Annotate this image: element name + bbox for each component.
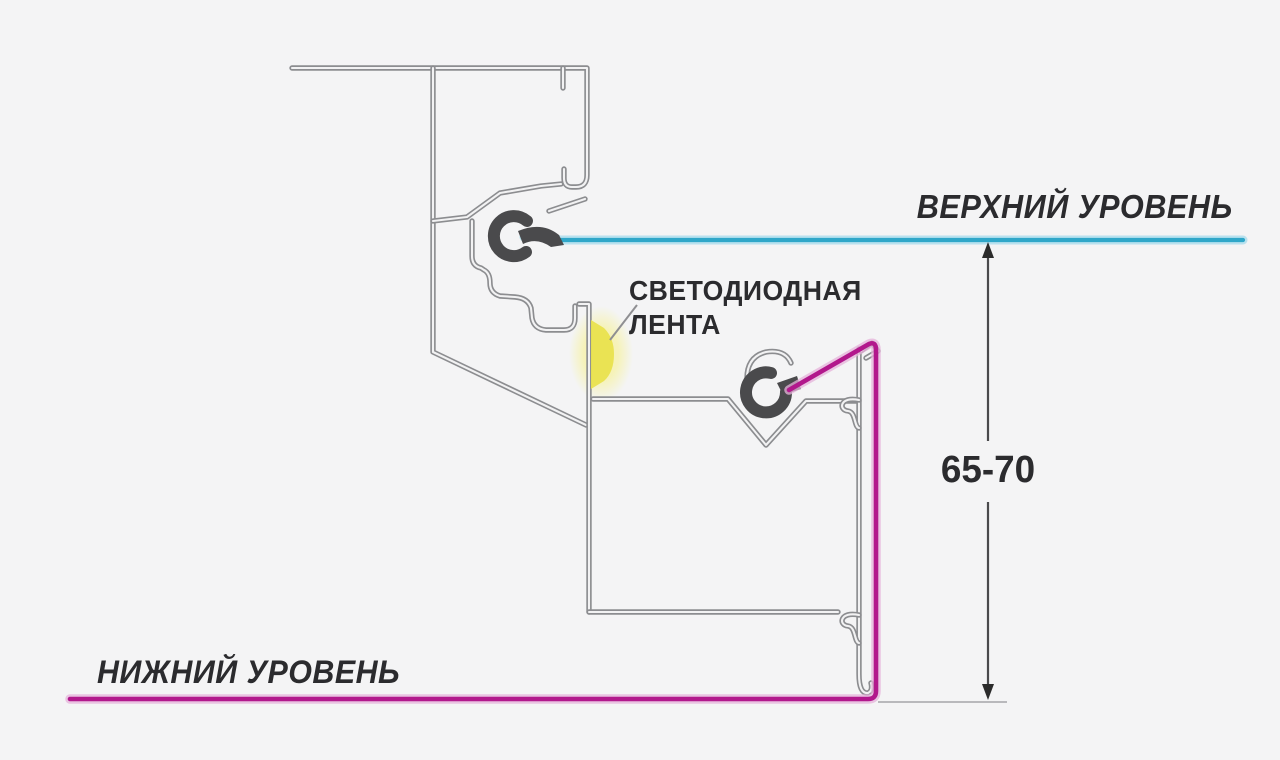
lower-level-line-core: [70, 343, 876, 699]
dimension-label: 65-70: [938, 449, 1039, 492]
lower-clip-ring: [746, 372, 786, 412]
lower-level-line: [70, 343, 876, 699]
upper-harpoon-clip: [494, 216, 564, 256]
ceiling-mount-profile: [292, 68, 587, 425]
upper-level-line: [524, 234, 1243, 240]
diagram-canvas: ВЕРХНИЙ УРОВЕНЬ СВЕТОДИОДНАЯ ЛЕНТА 65-70…: [0, 0, 1280, 760]
arrow-down-icon: [982, 684, 994, 700]
upper-clip-beak: [518, 227, 564, 247]
lower-level-label: НИЖНИЙ УРОВЕНЬ: [97, 654, 400, 691]
led-strip-label: СВЕТОДИОДНАЯ ЛЕНТА: [629, 274, 862, 342]
ceiling-cross-section-drawing: [0, 0, 1280, 760]
led-strip-label-line2: ЛЕНТА: [629, 308, 862, 342]
upper-level-label: ВЕРХНИЙ УРОВЕНЬ: [917, 188, 1233, 226]
lower-level-line-halo: [70, 343, 876, 699]
led-strip-label-line1: СВЕТОДИОДНАЯ: [629, 274, 862, 308]
